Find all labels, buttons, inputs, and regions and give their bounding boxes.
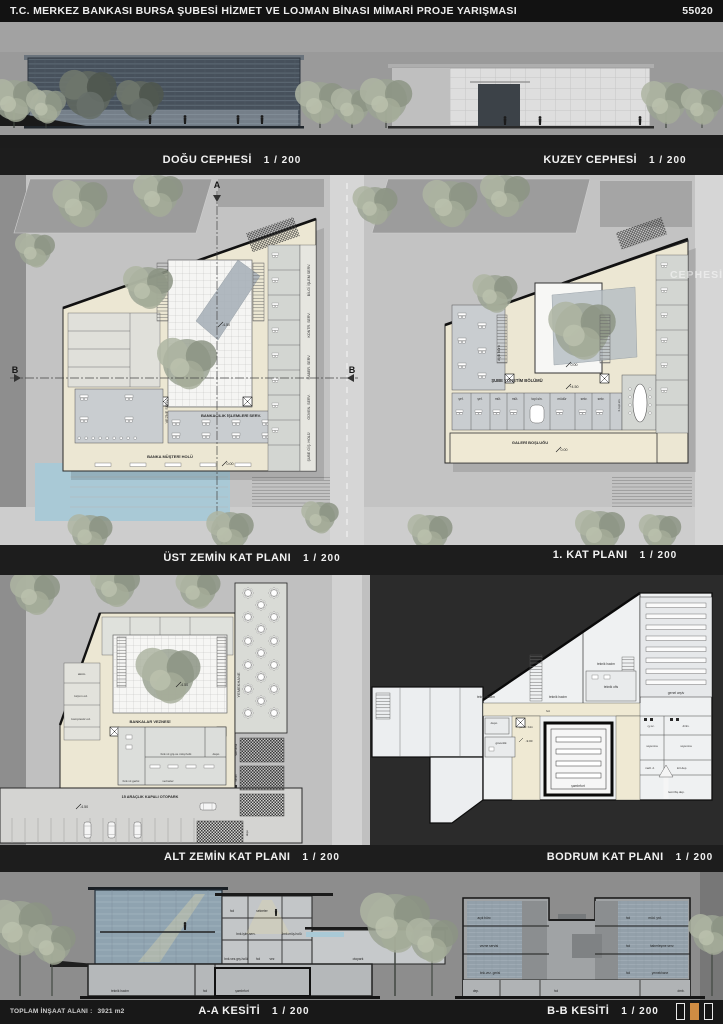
elevator [516,718,525,727]
caption-title: ALT ZEMİN KAT PLANI [164,851,290,863]
room-label: müt. [495,397,501,401]
room-label: depo [491,721,498,725]
level-label: -4.50 [80,805,88,809]
room-label: kırt.dep. [677,766,687,770]
entry-number: 55020 [682,5,713,17]
caption-lower-ground-plan: ALT ZEMİN KAT PLANI 1 / 200 [164,851,340,863]
elevations-drawing [0,22,723,148]
caption-scale: 1 / 200 [621,1006,659,1017]
section-marker-b: B [12,365,19,375]
pool-section [306,932,344,937]
management-rooms: şef. şef. müt. müt. topl.sln. müdür sekr… [452,393,622,430]
room-label: sekr. [598,397,605,401]
sheet-indicator-2 [690,1003,699,1020]
entrance [478,84,520,126]
elevator [110,727,119,736]
caption-section-aa: A-A KESİTİ 1 / 200 [198,1005,309,1017]
caption-scale: 1 / 200 [676,852,714,863]
room-label: bnk.vez. gerisi [480,971,501,975]
level-label: -4.50 [222,323,230,327]
room-label: müd. yrd. [648,916,661,920]
caption-scale: 1 / 200 [302,852,340,863]
room-label: b.topl.sln. [617,398,621,411]
plaza-steps [612,475,692,509]
archive-room: genel arşiv [640,597,712,697]
level-label: -9.00 [526,739,533,743]
room-label: aköm. [78,672,86,676]
elevator [600,374,609,383]
north-elevation-building [388,64,654,129]
level-label: 0.00 [571,363,578,367]
room-label: hol [626,944,631,948]
room-label: çy.oc. [647,724,654,728]
room-label: teknik hacim [111,989,129,993]
room-label: BANKALAR VEZNESİ [130,719,171,724]
car [134,822,141,838]
stairs [117,637,126,687]
room-label: müt. [512,397,518,401]
caption-title: B-B KESİTİ [547,1005,609,1017]
room-label: GALERİ BOŞLUĞU [512,440,548,445]
elevations-panel [0,22,723,148]
caption-scale: 1 / 200 [303,553,341,564]
room-label: BANKACILIK İŞLEMLERİ SERV. [201,413,261,418]
caption-north-elevation: KUZEY CEPHESİ 1 / 200 [543,154,686,166]
caption-first-floor-plan: 1. KAT PLANI 1 / 200 [553,549,677,561]
stairs [217,637,226,687]
room-label: soyunma [646,744,658,748]
room-label: şef. [458,397,463,401]
room-label: topl.sln. [532,397,543,401]
room-label: malz. d. [645,766,655,770]
caption-upper-ground-plan: ÜST ZEMİN KAT PLANI 1 / 200 [163,552,340,564]
room-label: kırpım od. [74,694,88,698]
sheet-indicator-1 [676,1003,685,1020]
section-marker-a: A [214,180,221,190]
room-label: bnk.işlm.serv. [236,932,255,936]
kitchen-blocks: hazırlama servis [234,738,284,816]
caption-title: KUZEY CEPHESİ [543,154,637,166]
room-label: ŞUBE YÖNETİM BÖLÜMÜ [491,378,542,383]
section-marker-b: B [349,365,356,375]
room-label: şef. [477,397,482,401]
room-label: dep. [473,989,479,993]
level-label: 0.00 [227,462,234,466]
caption-title: BODRUM KAT PLANI [547,851,664,863]
room-label: hol [626,916,631,920]
vault-room: şambrfort [545,723,612,795]
room-label: GÜVEN. SERV. [307,394,311,419]
big-meeting-room: b.topl.sln. [617,375,656,430]
room-label: 15 ARAÇLIK KAPALI OTOPARK [122,795,179,799]
level-label: 0.00 [561,448,568,452]
competition-board: T.C. MERKEZ BANKASI BURSA ŞUBESİ HİZMET … [0,0,723,1024]
courtyard: -4.50 [113,635,227,713]
room-label: açık büro [477,916,490,920]
room-label: güvenlik [495,741,507,745]
sheet-indicator-3 [704,1003,713,1020]
room-label: dmb. [677,989,684,993]
caption-title: A-A KESİTİ [198,1005,260,1017]
room-label: sekreter [256,909,268,913]
room-label: BİLGİ İŞLEM SERV. [306,264,311,296]
room-label: dinln. [683,724,690,728]
technical-rooms: aköm. kırpım od. kompresör od. [64,663,100,740]
stairs [376,693,390,719]
room-label: vezne servisi [480,944,499,948]
caption-scale: 1 / 200 [272,1006,310,1017]
room-label: teknik hacim [597,662,615,666]
site-plan-drawing: -4.50 [0,175,723,545]
room-label: HABER. SERV. [307,355,311,380]
caption-basement-plan: BODRUM KAT PLANI 1 / 200 [547,851,713,863]
service-wing: BİLGİ İŞLEM SERV. KONTR. SERV. HABER. SE… [268,245,316,471]
room-label: vezneler [162,779,173,783]
watermark-label: CEPHESİ 1 / 200 [670,268,723,281]
room-label: bnk.müş.holü [283,932,302,936]
room-label: hazırlama [234,743,238,756]
room-label: teknik hacim [549,695,567,699]
room-label: hol [203,989,208,993]
caption-scale: 1 / 200 [264,155,302,166]
elevator [243,397,252,406]
room-label: depo [245,829,249,836]
total-area: TOPLAM İNŞAAT ALANI : 3921 m2 [10,1008,125,1015]
person [275,909,277,916]
teller-zone: VEZNE SERV. [75,389,169,443]
service-wing [656,255,688,433]
caption-title: DOĞU CEPHESİ [163,154,252,166]
lower-plans-panel: 15 ARAÇLIK KAPALI OTOPARK -4.50 depo [0,575,723,845]
corridor [616,716,640,800]
room-label: hol [626,971,631,975]
sections-panel: hol sekreter bnk.işlm.serv. bnk.müş.holü… [0,872,723,1000]
room-label: hol [230,909,235,913]
room-label: BANKA MÜŞTERİ HOLÜ [147,454,193,459]
title-bar: T.C. MERKEZ BANKASI BURSA ŞUBESİ HİZMET … [0,0,723,22]
stairs [600,315,610,363]
basement-plan: genel arşiv hol şambr. holü -9.00 [372,593,712,823]
caption-section-bb: B-B KESİTİ 1 / 200 [547,1005,659,1017]
level-label: -4.50 [180,683,188,687]
room-label: bnk.vz.grş.ve müş.holü [161,752,192,756]
stairs [530,655,542,701]
room-label: müdür [557,397,567,401]
room-label: hol [546,709,550,713]
room-label: KONTR. SERV. [307,313,311,338]
room-label: şambrfort [235,989,249,993]
room-label: vez [270,957,275,961]
caption-title: 1. KAT PLANI [553,549,628,561]
room-label: hol [554,989,559,993]
room-label: ŞUBE GİŞ. HOLÜ [306,432,311,461]
room-label: hol [256,957,261,961]
room-label: genel arşiv [668,691,685,695]
car [200,803,216,810]
room-label: YEMEKHANE [236,672,241,697]
room-label: sekr. [581,397,588,401]
caption-title: ÜST ZEMİN KAT PLANI [163,552,291,564]
lower-plans-drawing: 15 ARAÇLIK KAPALI OTOPARK -4.50 depo [0,575,723,845]
room-label: soyunma [680,744,692,748]
room-label: şambrfort [571,784,585,788]
room-label: demirbş.dep. [667,790,685,794]
room-label: bnk.vz.gerisi [123,779,140,783]
room-label: servis [234,774,238,782]
level-label: +4.50 [569,385,578,389]
ramp [197,821,243,843]
room-label: haberleşme serv. [650,944,674,948]
stairs [253,263,264,321]
sections-drawing: hol sekreter bnk.işlm.serv. bnk.müş.holü… [0,872,723,1000]
car [108,822,115,838]
person [184,922,187,930]
room-label: teknik ofis [604,685,619,689]
room-label: kompresör od. [71,717,90,721]
room-label: bnk.vez.grş.holü [224,957,247,961]
dining-wing: YEMEKHANE [235,583,287,733]
car [84,822,91,838]
caption-scale: 1 / 200 [640,550,678,561]
tech-office: teknik ofis [586,671,636,701]
total-area-label: TOPLAM İNŞAAT ALANI : [10,1008,92,1015]
upper-plans-panel: -4.50 [0,175,723,545]
gallery-band: GALERİ BOŞLUĞU 0.00 [450,433,657,463]
room-label: otopark [353,957,364,961]
corridor [483,703,640,716]
room-label: teknik hacim [477,695,495,699]
room-label: yemekhane [652,971,669,975]
caption-east-elevation: DOĞU CEPHESİ 1 / 200 [163,154,302,166]
total-area-value: 3921 m2 [97,1008,124,1015]
teller-rooms: bnk.vz.grş.ve müş.holü depo vezneler bnk… [118,727,226,785]
stairs [497,315,507,363]
room-label: depo [213,752,220,756]
caption-scale: 1 / 200 [649,155,687,166]
board-title: T.C. MERKEZ BANKASI BURSA ŞUBESİ HİZMET … [10,5,517,17]
